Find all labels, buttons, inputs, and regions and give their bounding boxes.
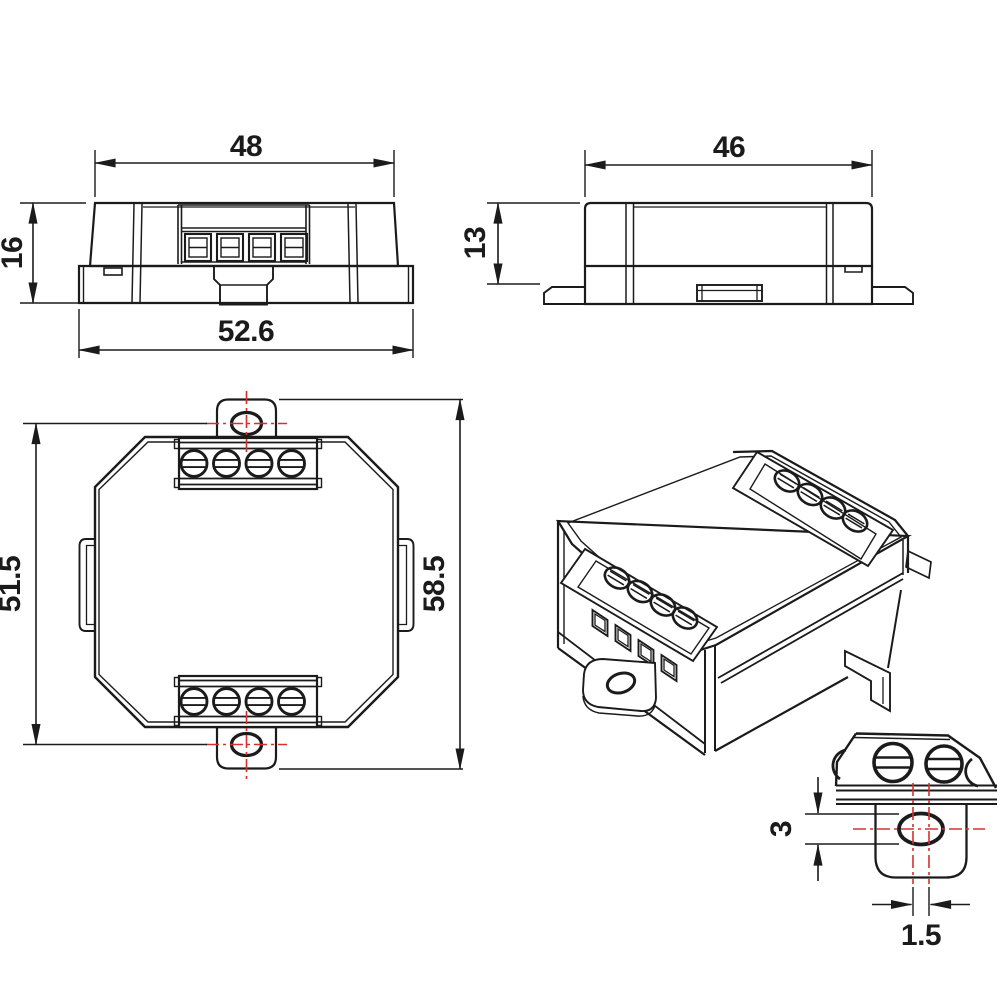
dim-side-height: 13: [459, 203, 580, 284]
dim-front-overall-width: 52.6: [79, 309, 413, 358]
front-facet-lines: [132, 204, 358, 303]
side-facet-lines: [626, 204, 833, 303]
side-right-flange: [872, 287, 913, 304]
technical-drawing-canvas: 48 16 52.6 4: [0, 0, 1000, 1000]
top-right-clip: [398, 539, 414, 631]
dim-side-width: 46: [585, 131, 872, 197]
dim-label-52.6: 52.6: [218, 315, 274, 348]
front-view: 48 16 52.6: [0, 130, 413, 358]
dim-detail-hole-offset: 1.5: [872, 887, 970, 952]
detail-screws: [874, 744, 962, 783]
top-terminal-block-lower: [175, 676, 322, 727]
front-bottom-tab: [214, 266, 273, 305]
dim-label-13: 13: [459, 227, 492, 259]
front-terminal-windows: [185, 234, 307, 261]
top-view: 51.5 58.5: [0, 391, 463, 780]
dim-label-16: 16: [0, 237, 29, 269]
isometric-view: [558, 451, 931, 755]
iso-mounting-ear: [583, 659, 656, 716]
side-shell: [585, 203, 872, 266]
dim-label-46: 46: [713, 131, 745, 164]
top-left-clip: [80, 539, 96, 631]
side-left-flange: [544, 287, 585, 304]
side-view: 46 13: [459, 131, 913, 304]
iso-rear-tab: [906, 551, 931, 578]
side-center-tab: [697, 285, 762, 301]
dim-label-58.5: 58.5: [418, 556, 451, 612]
detail-block-end: [833, 734, 997, 805]
dim-front-height: 16: [0, 203, 86, 303]
detail-view: 3 1.5: [765, 734, 997, 953]
iso-terminal-block-right: [733, 452, 893, 566]
dim-label-3: 3: [765, 821, 798, 837]
dim-label-51.5: 51.5: [0, 556, 27, 612]
dim-front-top-width: 48: [95, 130, 394, 197]
top-terminal-block-upper: [175, 438, 322, 489]
dim-label-1.5: 1.5: [901, 919, 941, 952]
dim-label-48: 48: [230, 130, 262, 163]
technical-drawing: 48 16 52.6 4: [0, 0, 1000, 1000]
dim-top-hole-spacing: 51.5: [0, 424, 207, 745]
